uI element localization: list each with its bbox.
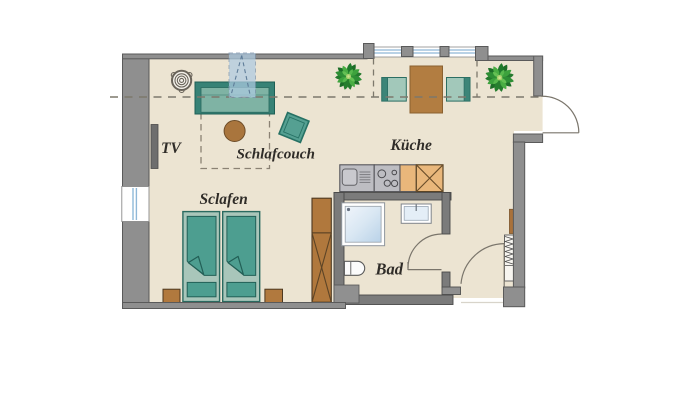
svg-text:Bad: Bad (375, 260, 404, 279)
svg-text:TV: TV (161, 140, 182, 157)
svg-text:Küche: Küche (390, 137, 432, 154)
svg-text:Schlafcouch: Schlafcouch (237, 146, 315, 163)
svg-text:Sclafen: Sclafen (200, 191, 248, 208)
